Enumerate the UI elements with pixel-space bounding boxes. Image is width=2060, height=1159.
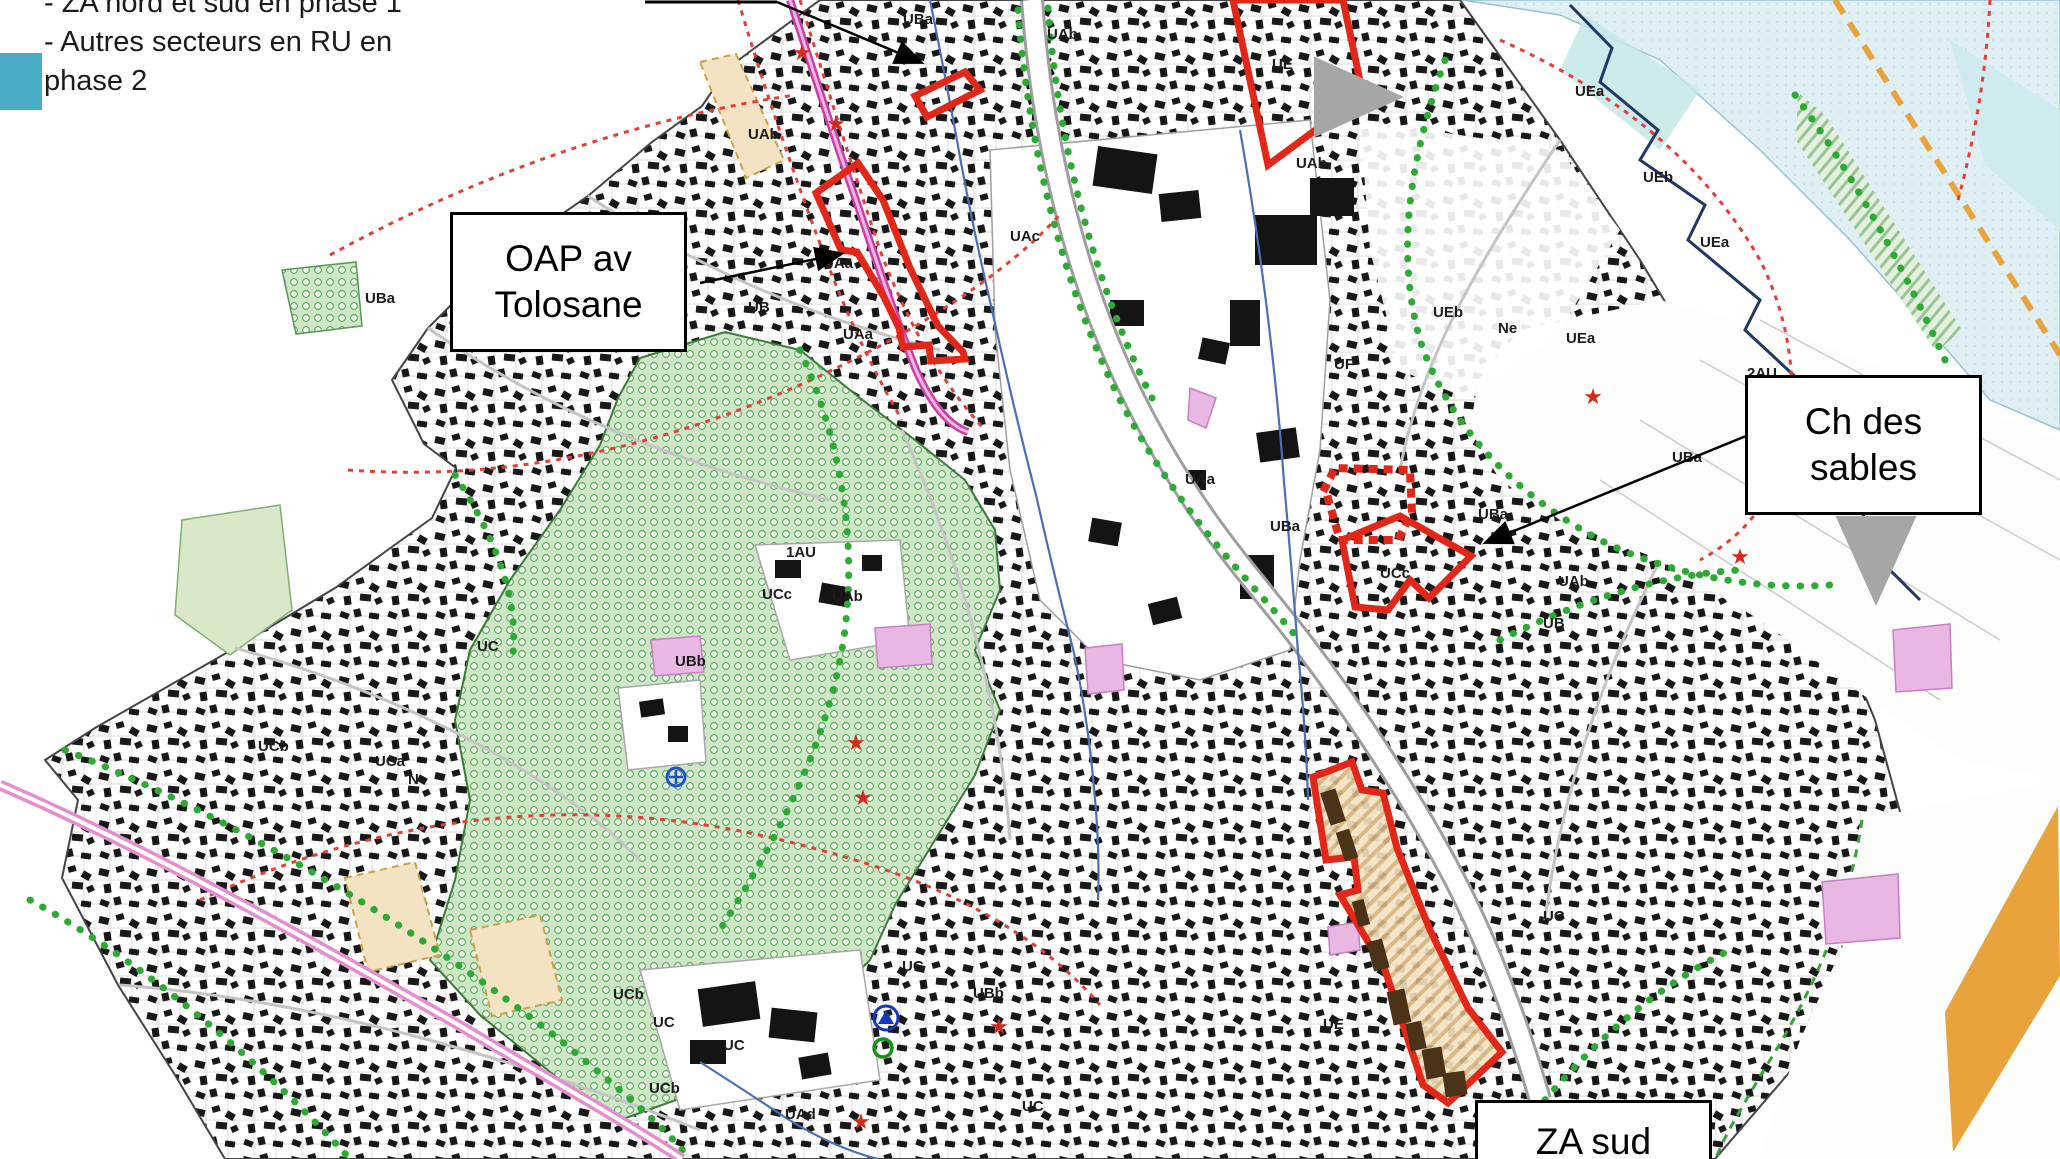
callout-oap-line1: OAP av — [505, 236, 632, 282]
zone-label: UCc — [762, 586, 792, 603]
red-star-icon: ★ — [853, 785, 873, 810]
callout-ch-des-sables: Ch des sables — [1745, 375, 1982, 515]
notes-line-2: - Autres secteurs en RU en — [44, 23, 484, 62]
zone-label: UF — [1334, 356, 1354, 373]
zone-label: UAb — [1047, 26, 1078, 43]
red-star-icon: ★ — [826, 111, 846, 136]
zone-label: UAb — [1296, 155, 1327, 172]
callout-zasud-label: ZA sud — [1536, 1119, 1651, 1159]
zone-label: UBa — [365, 290, 396, 307]
notes-line-1: - ZA nord et sud en phase 1 — [44, 0, 484, 23]
zone-label: UAb — [1558, 573, 1589, 590]
zone-label: Ne — [1498, 320, 1517, 337]
zone-label: UBa — [1270, 518, 1301, 535]
red-star-icon: ★ — [1583, 384, 1603, 409]
notes-text: - ZA nord et sud en phase 1 - Autres sec… — [44, 0, 484, 101]
callout-oap-tolosane: OAP av Tolosane — [450, 212, 687, 352]
zone-label: UC — [477, 638, 499, 655]
zone-label: UC — [653, 1014, 675, 1031]
red-star-icon: ★ — [1730, 544, 1750, 569]
zone-label: UEa — [1566, 330, 1596, 347]
teal-accent-square — [0, 53, 42, 110]
red-star-icon: ★ — [792, 40, 812, 65]
zone-label: UEa — [1700, 234, 1730, 251]
notes-line-3: phase 2 — [44, 62, 484, 101]
red-star-icon: ★ — [851, 1109, 871, 1134]
zone-label: 1AU — [786, 544, 816, 561]
zone-label: N — [408, 771, 419, 788]
zone-label: UEb — [1643, 169, 1673, 186]
zone-label: UCb — [649, 1080, 680, 1097]
zone-label: UEb — [1433, 304, 1463, 321]
zone-label: UBb — [973, 985, 1004, 1002]
callout-za-sud: ZA sud — [1475, 1100, 1712, 1159]
zone-label: UE — [1272, 56, 1293, 73]
zone-label: UBb — [675, 653, 706, 670]
zone-label: UBa — [1478, 506, 1509, 523]
zone-label: UAc — [1010, 228, 1040, 245]
zoning-map: ★ ★ ★ ★ ★ ★ ★ ★ UBa UAb UAb UE UAb UEa U… — [0, 0, 2060, 1159]
green-area-upper-left — [282, 262, 362, 334]
red-star-icon: ★ — [989, 1014, 1009, 1039]
zone-label: UCb — [613, 986, 644, 1003]
zone-label: UCb — [258, 738, 289, 755]
zone-label: UC — [902, 958, 924, 975]
zone-label: UAd — [785, 1106, 816, 1123]
zone-label: UAa — [843, 326, 874, 343]
callout-oap-line2: Tolosane — [494, 282, 642, 328]
zone-label: UC — [1543, 908, 1565, 925]
zone-label: UAb — [832, 588, 863, 605]
zone-label: UB — [748, 299, 770, 316]
zone-label: UE — [1323, 1016, 1344, 1033]
zone-label: UC — [1022, 1098, 1044, 1115]
callout-sables-line1: Ch des — [1805, 399, 1922, 445]
zone-label: UC — [723, 1037, 745, 1054]
slide-canvas: ★ ★ ★ ★ ★ ★ ★ ★ UBa UAb UAb UE UAb UEa U… — [0, 0, 2060, 1159]
zone-label: UBa — [903, 11, 934, 28]
zone-label: UEa — [1575, 83, 1605, 100]
zone-label: UB — [1543, 615, 1565, 632]
zone-label: UAb — [748, 126, 779, 143]
red-star-icon: ★ — [846, 730, 866, 755]
zone-label: UAa — [1185, 471, 1216, 488]
zone-label: UCa — [375, 753, 406, 770]
callout-sables-line2: sables — [1810, 445, 1917, 491]
zone-label: UCc — [1380, 565, 1410, 582]
